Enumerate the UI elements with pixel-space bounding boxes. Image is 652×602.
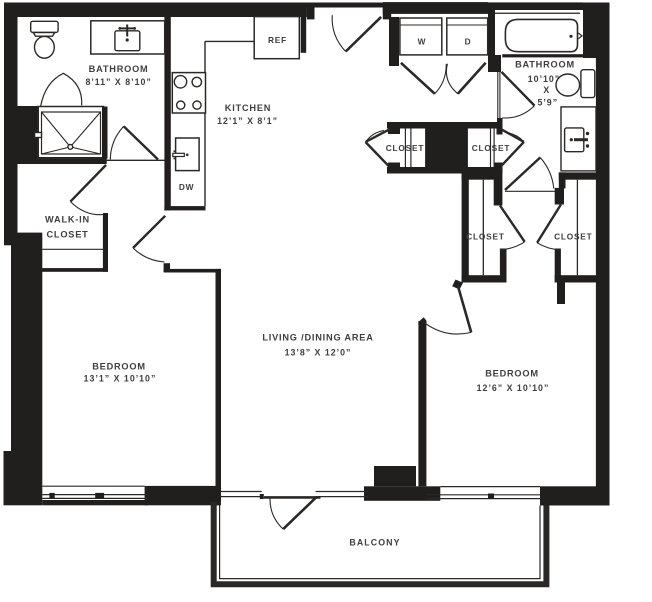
svg-text:BATHROOM: BATHROOM [515,60,575,70]
svg-text:KITCHEN: KITCHEN [225,103,271,113]
svg-text:BALCONY: BALCONY [349,538,400,548]
svg-text:D: D [465,37,472,47]
svg-text:CLOSET: CLOSET [472,143,510,153]
svg-text:CLOSET: CLOSET [554,232,592,242]
svg-text:8’11” X 8’10”: 8’11” X 8’10” [85,77,151,87]
svg-text:BATHROOM: BATHROOM [89,64,149,74]
svg-text:X: X [543,85,550,95]
svg-text:BEDROOM: BEDROOM [485,369,539,379]
svg-text:BEDROOM: BEDROOM [92,362,146,372]
svg-text:12’6” X 10’10”: 12’6” X 10’10” [477,383,550,393]
svg-text:LIVING /DINING AREA: LIVING /DINING AREA [262,332,373,342]
svg-text:REF: REF [268,35,287,45]
svg-text:CLOSET: CLOSET [46,230,88,240]
svg-text:CLOSET: CLOSET [386,143,424,153]
svg-text:13’1” X 10’10”: 13’1” X 10’10” [84,374,157,384]
svg-text:5’9”: 5’9” [537,98,558,108]
svg-text:10’10”: 10’10” [528,74,560,84]
svg-text:DW: DW [179,182,194,192]
svg-text:W: W [418,37,427,47]
svg-text:12’1” X 8’1”: 12’1” X 8’1” [217,116,278,126]
svg-text:CLOSET: CLOSET [466,232,504,242]
svg-text:13’8” X 12’0”: 13’8” X 12’0” [285,347,352,357]
svg-text:WALK-IN: WALK-IN [45,215,90,225]
